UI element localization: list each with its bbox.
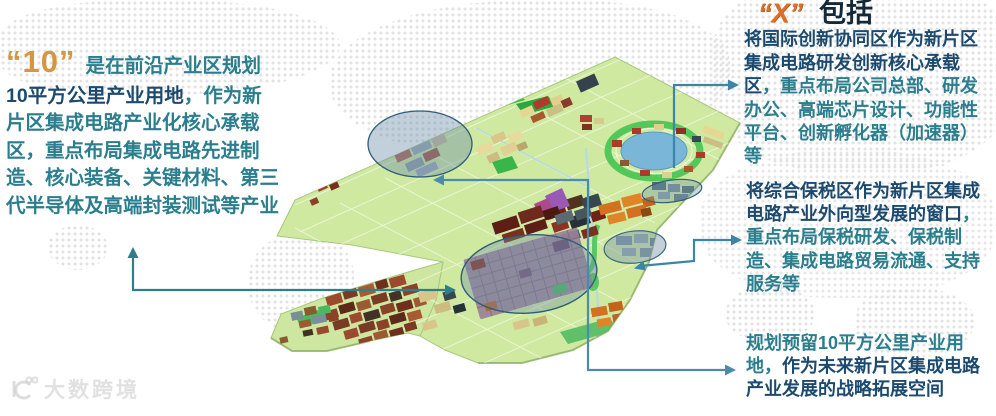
right-top-title-line: “X” 包括	[758, 2, 990, 25]
dotted-worldmap-pattern	[48, 225, 108, 270]
right-middle-body: 将综合保税区作为新片区集成电路产业外向型发展的窗口，重点布局保税研发、保税制造、…	[746, 180, 986, 296]
left-bold-text: 10平方公里产业用地	[6, 85, 184, 107]
watermark-text: 大数跨境	[44, 374, 140, 404]
right-middle-annotation-block: 将综合保税区作为新片区集成电路产业外向型发展的窗口，重点布局保税研发、保税制造、…	[746, 180, 986, 296]
left-annotation-body: 10平方公里产业用地，作为新片区集成电路产业化核心承载区，重点布局集成电路先进制…	[6, 83, 280, 221]
right-top-rest-text: ，重点布局公司总部、研发办公、高端芯片设计、功能性平台、创新孵化器（加速器）等	[744, 76, 978, 166]
left-annotation-block: “10” 是在前沿产业区规划 10平方公里产业用地，作为新片区集成电路产业化核心…	[6, 48, 280, 220]
quote-letter-x: “X”	[758, 2, 803, 25]
right-bottom-annotation-block: 规划预留10平方公里产业用地，作为未来新片区集成电路产业发展的战略拓展空间	[746, 332, 988, 401]
watermark: 大数跨境	[8, 374, 140, 404]
landuse-planning-map	[268, 40, 748, 375]
left-intro-text: 是在前沿产业区规划	[85, 53, 261, 81]
right-bottom-body: 规划预留10平方公里产业用地，作为未来新片区集成电路产业发展的战略拓展空间	[746, 332, 988, 401]
left-annotation-title-line: “10” 是在前沿产业区规划	[6, 48, 280, 81]
right-top-body: 将国际创新协同区作为新片区集成电路研发创新核心承载区，重点布局公司总部、研发办公…	[744, 28, 990, 168]
right-top-annotation-block: “X” 包括 将国际创新协同区作为新片区集成电路研发创新核心承载区，重点布局公司…	[744, 2, 990, 169]
lake	[621, 132, 687, 170]
parcel-cluster-top-band	[427, 65, 485, 107]
highlight-circle-left	[368, 111, 472, 177]
watermark-logo-icon	[8, 375, 38, 403]
arrowhead-up	[128, 247, 139, 258]
quote-number-10: “10”	[6, 48, 75, 76]
map-svg	[268, 40, 748, 375]
right-bottom-bold-text: 作为未来新片区集成电路产业发展的战略拓展空间	[746, 356, 980, 399]
right-top-title: 包括	[819, 2, 873, 25]
right-middle-bold-text: 将综合保税区作为新片区集成电路产业外向型发展的窗口	[746, 181, 980, 224]
